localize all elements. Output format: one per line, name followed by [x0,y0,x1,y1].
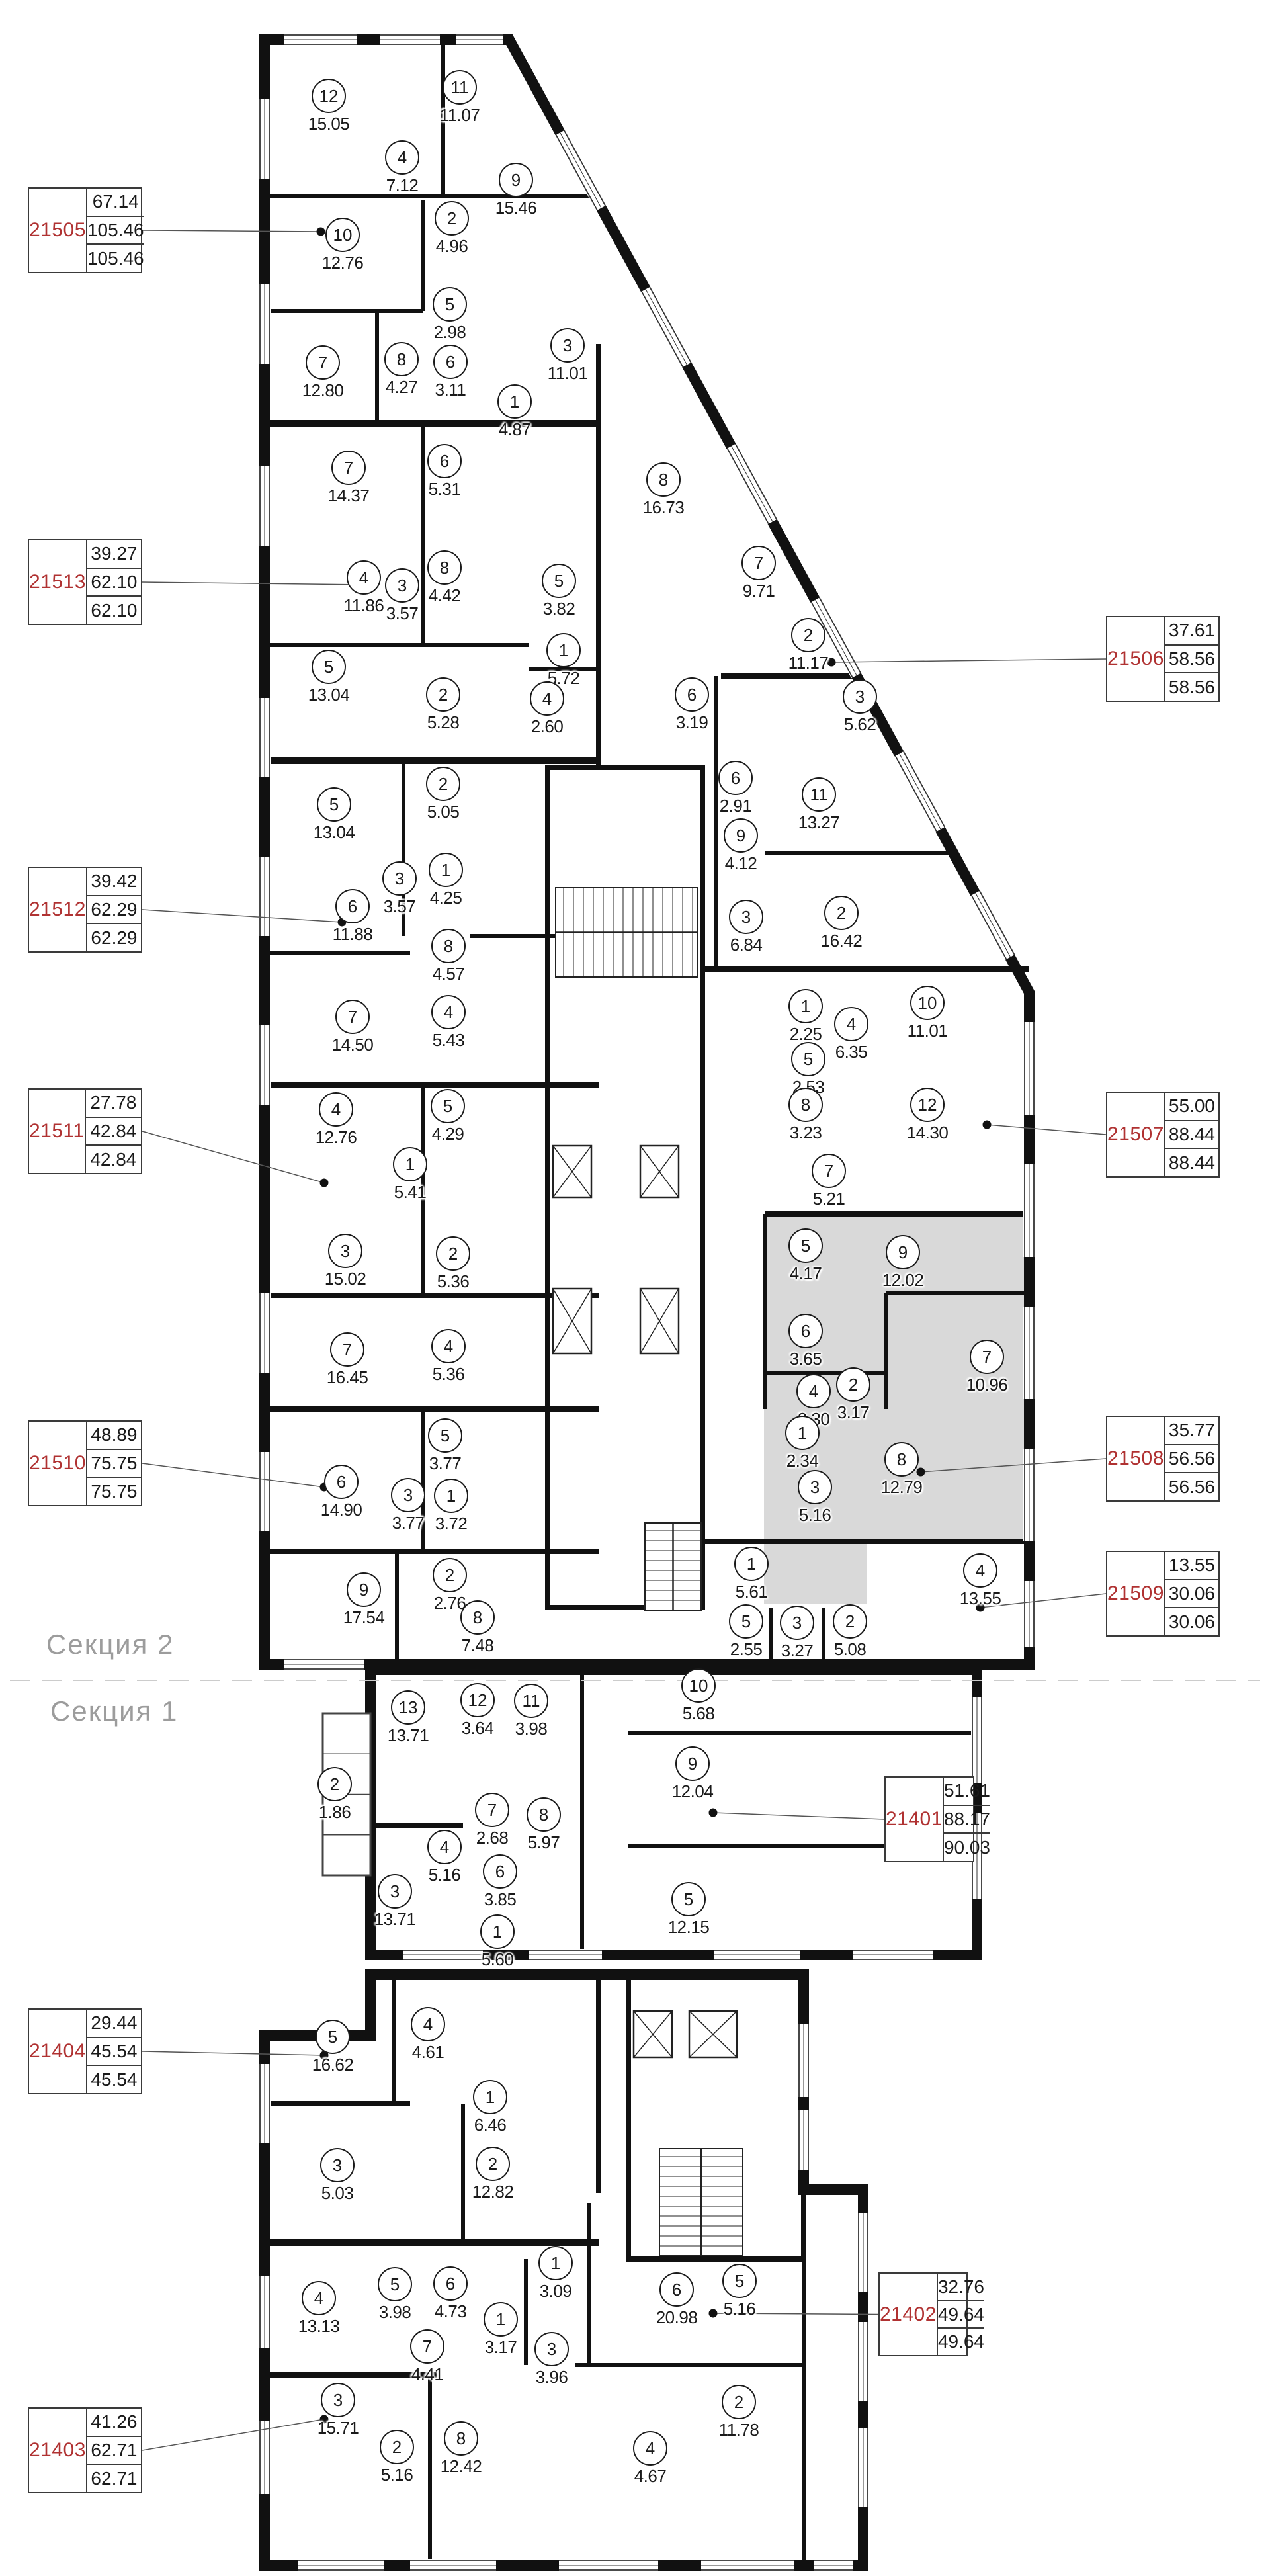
apartment-box-21508[interactable]: 2150835.7756.5656.56 [1106,1416,1220,1502]
room-area-value: 5.28 [427,712,460,733]
apartment-area-value: 58.56 [1165,644,1218,673]
room-area-value: 6.46 [474,2115,507,2135]
room-area-value: 5.62 [844,714,876,735]
room-area-value: 10.96 [966,1375,1008,1395]
room-area-value: 12.15 [668,1917,710,1938]
apartment-box-21403[interactable]: 2140341.2662.7162.71 [28,2407,142,2493]
room-number-circle: 2 [722,2385,756,2419]
room-number-circle: 4 [431,1329,466,1363]
section-label-lower: Секция 1 [50,1696,178,1727]
room-number-circle: 1 [393,1147,427,1181]
room-area-value: 4.25 [430,888,462,908]
apartment-area-value: 42.84 [86,1144,141,1173]
room-area-value: 3.17 [837,1402,870,1423]
room-number-circle: 2 [833,1604,867,1639]
room-number-circle: 10 [910,986,945,1020]
room-area-value: 7.48 [462,1635,494,1656]
room-number-circle: 4 [796,1374,831,1408]
room-area-value: 6.84 [730,935,763,955]
room-number-circle: 7 [410,2329,444,2364]
apartment-area-value: 62.10 [87,595,141,624]
room-number-circle: 7 [812,1154,846,1188]
room-number-circle: 2 [836,1367,870,1402]
room-area-value: 2.68 [476,1828,509,1848]
room-number-circle: 2 [791,618,825,652]
apartment-id: 21512 [29,868,86,951]
room-area-value: 12.76 [316,1127,357,1148]
room-number-circle: 3 [550,328,585,363]
room-area-value: 13.27 [798,812,840,833]
room-number-circle: 4 [633,2431,667,2466]
room-area-value: 9.71 [743,581,775,601]
apartment-id: 21403 [29,2409,86,2492]
apartment-box-21505[interactable]: 2150567.14105.46105.46 [28,187,142,273]
room-area-value: 14.30 [907,1123,949,1143]
room-area-value: 5.68 [683,1703,715,1724]
room-number-circle: 7 [475,1793,509,1827]
apartment-area-value: 62.71 [87,2464,141,2492]
room-area-value: 12.82 [472,2182,514,2202]
room-area-value: 4.17 [790,1264,822,1284]
room-number-circle: 2 [317,1767,352,1801]
room-area-value: 4.73 [435,2301,467,2322]
room-number-circle: 3 [385,568,419,603]
apartment-id: 21402 [880,2274,937,2355]
room-area-value: 5.16 [724,2299,756,2319]
room-number-circle: 12 [312,79,346,113]
apartment-box-21507[interactable]: 2150755.0088.4488.44 [1106,1092,1220,1178]
room-number-circle: 2 [435,201,469,236]
room-number-circle: 2 [426,767,460,801]
room-number-circle: 11 [514,1684,548,1718]
room-number-circle: 11 [443,70,477,105]
room-number-circle: 7 [970,1340,1004,1374]
room-area-value: 3.17 [485,2337,517,2358]
room-number-circle: 4 [963,1553,997,1588]
room-number-circle: 4 [411,2007,445,2041]
room-area-value: 3.85 [484,1889,517,1910]
room-number-circle: 4 [431,995,466,1029]
room-number-circle: 6 [483,1854,517,1889]
apartment-box-21510[interactable]: 2151048.8975.7575.75 [28,1420,142,1506]
room-area-value: 16.42 [821,931,863,951]
room-area-value: 11.07 [440,105,480,126]
room-area-value: 11.86 [344,595,384,616]
room-number-circle: 1 [538,2246,573,2280]
room-area-value: 12.02 [882,1270,924,1291]
room-area-value: 15.02 [325,1269,366,1289]
room-number-circle: 10 [681,1668,716,1703]
room-number-circle: 8 [527,1797,561,1832]
room-number-circle: 8 [427,550,462,585]
apartment-area-value: 39.42 [87,868,141,895]
room-area-value: 16.62 [312,2055,354,2075]
room-number-circle: 3 [534,2332,569,2366]
apartment-box-21402[interactable]: 2140232.7649.6449.64 [878,2272,968,2356]
room-number-circle: 4 [427,1830,462,1864]
apartment-id: 21506 [1107,617,1164,701]
section-label-upper: Секция 2 [46,1629,174,1660]
room-area-value: 4.57 [433,964,465,984]
room-number-circle: 5 [431,1089,465,1123]
room-area-value: 13.55 [960,1588,1001,1609]
room-number-circle: 12 [460,1683,495,1717]
room-number-circle: 1 [788,989,823,1023]
apartment-area-value: 51.61 [944,1778,990,1805]
apartment-box-21512[interactable]: 2151239.4262.2962.29 [28,867,142,953]
room-area-value: 13.04 [314,822,355,843]
room-number-circle: 4 [530,681,564,716]
apartment-area-value: 62.71 [87,2436,141,2464]
room-area-value: 16.73 [643,497,685,518]
room-number-circle: 6 [324,1465,359,1499]
room-number-circle: 4 [385,140,419,175]
room-number-circle: 11 [802,777,836,812]
apartment-area-value: 56.56 [1165,1472,1218,1500]
room-number-circle: 8 [884,1442,919,1477]
room-number-circle: 2 [433,1558,467,1592]
room-area-value: 5.16 [799,1505,831,1525]
apartment-id: 21511 [29,1090,85,1173]
apartment-id: 21513 [29,540,86,624]
room-area-value: 4.12 [725,853,757,874]
room-number-circle: 1 [484,2302,518,2337]
room-number-circle: 5 [317,787,351,822]
room-area-value: 5.16 [429,1865,461,1885]
room-number-circle: 7 [331,451,366,485]
room-number-circle: 4 [319,1092,353,1127]
room-number-circle: 6 [335,889,370,923]
room-number-circle: 3 [843,679,877,714]
room-area-value: 5.36 [437,1271,470,1292]
room-area-value: 12.79 [881,1477,923,1498]
room-area-value: 2.55 [730,1639,763,1660]
apartment-area-value: 27.78 [86,1090,141,1117]
room-number-circle: 7 [741,546,776,580]
floor-plan-drawing [0,0,1270,2576]
apartment-area-value: 42.84 [86,1117,141,1145]
room-area-value: 4.41 [411,2364,444,2385]
room-area-value: 15.71 [317,2418,359,2438]
room-area-value: 3.77 [392,1513,425,1533]
room-area-value: 4.96 [436,236,468,257]
apartment-area-value: 37.61 [1165,617,1218,644]
room-number-circle: 2 [824,896,859,930]
room-number-circle: 9 [499,163,533,197]
floor-plan-canvas: 1215.051111.0747.12915.4624.961012.7652.… [0,0,1270,2576]
room-number-circle: 5 [729,1604,763,1639]
room-number-circle: 8 [788,1088,823,1122]
apartment-area-value: 29.44 [87,2010,141,2037]
room-area-value: 5.36 [433,1364,465,1385]
room-number-circle: 9 [724,818,758,853]
room-area-value: 4.67 [634,2466,667,2487]
room-area-value: 11.01 [908,1021,948,1041]
apartment-area-value: 56.56 [1165,1444,1218,1473]
room-number-circle: 1 [734,1547,769,1581]
room-number-circle: 10 [325,218,360,252]
apartment-area-value: 75.75 [87,1449,141,1477]
room-number-circle: 2 [476,2147,510,2181]
room-number-circle: 12 [910,1088,945,1122]
apartment-box-21401[interactable]: 2140151.6188.1790.03 [884,1776,974,1862]
room-area-value: 11.17 [788,653,829,673]
apartment-id: 21401 [886,1778,943,1861]
room-area-value: 14.90 [321,1500,362,1520]
apartment-box-21511[interactable]: 2151127.7842.8442.84 [28,1088,142,1174]
room-number-circle: 13 [391,1690,425,1725]
room-area-value: 5.21 [813,1189,845,1209]
room-area-value: 14.50 [332,1035,374,1055]
apartment-box-21404[interactable]: 2140429.4445.5445.54 [28,2008,142,2094]
room-area-value: 2.98 [434,322,466,343]
room-number-circle: 5 [428,1418,462,1453]
apartment-area-value: 30.06 [1165,1579,1218,1608]
room-number-circle: 8 [384,342,419,376]
room-number-circle: 5 [671,1882,706,1916]
apartment-id: 21508 [1107,1417,1164,1500]
room-number-circle: 3 [798,1470,832,1504]
room-area-value: 11.88 [333,924,373,945]
room-number-circle: 9 [886,1235,920,1269]
room-area-value: 3.11 [435,380,466,400]
room-number-circle: 5 [433,287,467,322]
room-area-value: 16.45 [327,1367,368,1388]
room-number-circle: 1 [480,1914,515,1949]
room-number-circle: 3 [382,861,417,896]
room-number-circle: 7 [330,1332,364,1367]
room-area-value: 3.09 [540,2281,572,2301]
room-number-circle: 3 [729,900,763,934]
apartment-id: 21507 [1107,1093,1164,1176]
room-area-value: 5.97 [528,1832,560,1853]
room-area-value: 3.27 [781,1641,814,1661]
apartment-box-21509[interactable]: 2150913.5530.0630.06 [1106,1551,1220,1637]
room-area-value: 2.91 [720,796,752,816]
room-area-value: 3.23 [790,1123,822,1143]
room-number-circle: 8 [431,929,466,963]
apartment-area-value: 49.64 [938,2327,984,2355]
apartment-area-value: 67.14 [87,189,144,216]
room-number-circle: 5 [378,2267,412,2301]
room-area-value: 15.46 [495,198,537,218]
room-number-circle: 7 [306,345,340,380]
room-number-circle: 8 [444,2421,478,2456]
room-area-value: 3.64 [462,1718,494,1739]
room-area-value: 3.19 [676,712,708,733]
apartment-area-value: 13.55 [1165,1552,1218,1579]
room-number-circle: 8 [460,1600,495,1635]
room-area-value: 5.16 [381,2465,413,2485]
apartment-area-value: 41.26 [87,2409,141,2436]
apartment-area-value: 30.06 [1165,1607,1218,1635]
room-number-circle: 3 [391,1478,425,1512]
apartment-area-value: 55.00 [1165,1093,1218,1120]
room-area-value: 3.57 [384,896,416,917]
room-area-value: 2.34 [786,1451,819,1471]
apartment-area-value: 45.54 [87,2037,141,2065]
room-area-value: 11.78 [719,2420,759,2440]
room-area-value: 12.80 [302,380,344,401]
apartment-box-21506[interactable]: 2150637.6158.5658.56 [1106,616,1220,702]
apartment-area-value: 105.46 [87,216,144,244]
room-number-circle: 4 [347,560,381,595]
room-number-circle: 6 [433,345,468,379]
room-number-circle: 6 [433,2266,468,2301]
room-area-value: 3.72 [435,1514,468,1534]
room-number-circle: 6 [788,1314,823,1348]
room-area-value: 5.60 [482,1950,514,1970]
room-area-value: 12.76 [322,253,364,273]
room-area-value: 13.71 [388,1725,429,1746]
room-area-value: 5.61 [736,1582,768,1602]
room-number-circle: 5 [312,650,346,684]
room-area-value: 12.42 [441,2456,482,2477]
room-area-value: 15.05 [308,114,350,134]
room-number-circle: 1 [785,1416,820,1450]
apartment-id: 21505 [29,189,86,272]
room-number-circle: 6 [427,444,462,478]
room-area-value: 4.29 [432,1124,464,1144]
room-area-value: 3.82 [543,599,575,619]
room-area-value: 3.98 [515,1719,548,1739]
room-number-circle: 3 [321,2383,355,2417]
room-number-circle: 1 [546,633,581,667]
room-area-value: 7.12 [386,175,419,196]
room-area-value: 13.71 [374,1909,416,1930]
apartment-area-value: 62.10 [87,568,141,596]
room-number-circle: 1 [473,2080,507,2114]
room-number-circle: 5 [791,1042,825,1076]
room-area-value: 3.65 [790,1349,822,1369]
room-number-circle: 6 [659,2272,694,2307]
room-area-value: 4.87 [499,419,531,440]
room-number-circle: 9 [675,1746,710,1781]
room-area-value: 5.05 [427,802,460,822]
room-number-circle: 8 [646,462,681,497]
room-number-circle: 6 [675,677,709,712]
apartment-area-value: 58.56 [1165,672,1218,701]
apartment-area-value: 32.76 [938,2274,984,2300]
room-area-value: 13.04 [308,685,350,705]
room-number-circle: 7 [335,1000,370,1034]
room-number-circle: 2 [436,1236,470,1271]
apartment-area-value: 88.17 [944,1805,990,1833]
room-area-value: 13.13 [298,2316,340,2337]
apartment-id: 21509 [1107,1552,1164,1635]
room-area-value: 5.08 [834,1639,867,1660]
apartment-area-value: 62.29 [87,923,141,951]
room-area-value: 3.77 [429,1453,462,1474]
apartment-area-value: 48.89 [87,1422,141,1449]
room-number-circle: 3 [378,1874,412,1909]
apartment-id: 21510 [29,1422,86,1505]
room-area-value: 6.35 [835,1042,868,1062]
room-number-circle: 3 [320,2148,355,2182]
room-number-circle: 6 [718,761,753,795]
room-number-circle: 1 [497,384,532,419]
apartment-area-value: 49.64 [938,2300,984,2328]
apartment-id: 21404 [29,2010,86,2093]
room-area-value: 3.96 [536,2367,568,2387]
room-area-value: 5.41 [394,1182,427,1203]
room-area-value: 2.60 [531,716,564,737]
room-area-value: 20.98 [656,2307,698,2328]
apartment-box-21513[interactable]: 2151339.2762.1062.10 [28,539,142,625]
room-number-circle: 3 [328,1234,362,1268]
apartment-area-value: 90.03 [944,1832,990,1861]
apartment-area-value: 88.44 [1165,1148,1218,1176]
room-number-circle: 5 [316,2020,350,2054]
room-number-circle: 9 [347,1572,381,1607]
apartment-area-value: 45.54 [87,2065,141,2093]
room-number-circle: 4 [834,1007,868,1041]
room-number-circle: 2 [426,677,460,712]
room-number-circle: 3 [780,1606,814,1640]
room-area-value: 14.37 [328,486,370,506]
apartment-area-value: 35.77 [1165,1417,1218,1444]
room-area-value: 11.01 [548,363,588,384]
room-area-value: 3.98 [379,2302,411,2323]
apartment-area-value: 88.44 [1165,1120,1218,1148]
apartment-area-value: 39.27 [87,540,141,568]
room-area-value: 4.42 [429,585,461,606]
stairs-and-elevators [553,888,743,2256]
room-area-value: 5.03 [321,2183,354,2204]
apartment-area-value: 62.29 [87,895,141,923]
room-number-circle: 5 [722,2264,757,2298]
room-area-value: 12.04 [672,1782,714,1802]
room-number-circle: 2 [380,2430,414,2464]
room-area-value: 5.43 [433,1030,465,1051]
room-area-value: 4.27 [386,377,418,398]
room-area-value: 3.57 [386,603,419,624]
room-area-value: 5.31 [429,479,461,499]
room-number-circle: 5 [788,1228,823,1263]
room-number-circle: 1 [434,1479,468,1513]
apartment-area-value: 75.75 [87,1477,141,1505]
room-area-value: 17.54 [343,1608,385,1628]
apartment-area-value: 105.46 [87,243,144,272]
room-area-value: 4.61 [412,2042,444,2063]
room-number-circle: 4 [302,2281,336,2315]
room-number-circle: 5 [542,564,576,598]
room-number-circle: 1 [429,853,463,887]
room-area-value: 1.86 [319,1802,351,1823]
